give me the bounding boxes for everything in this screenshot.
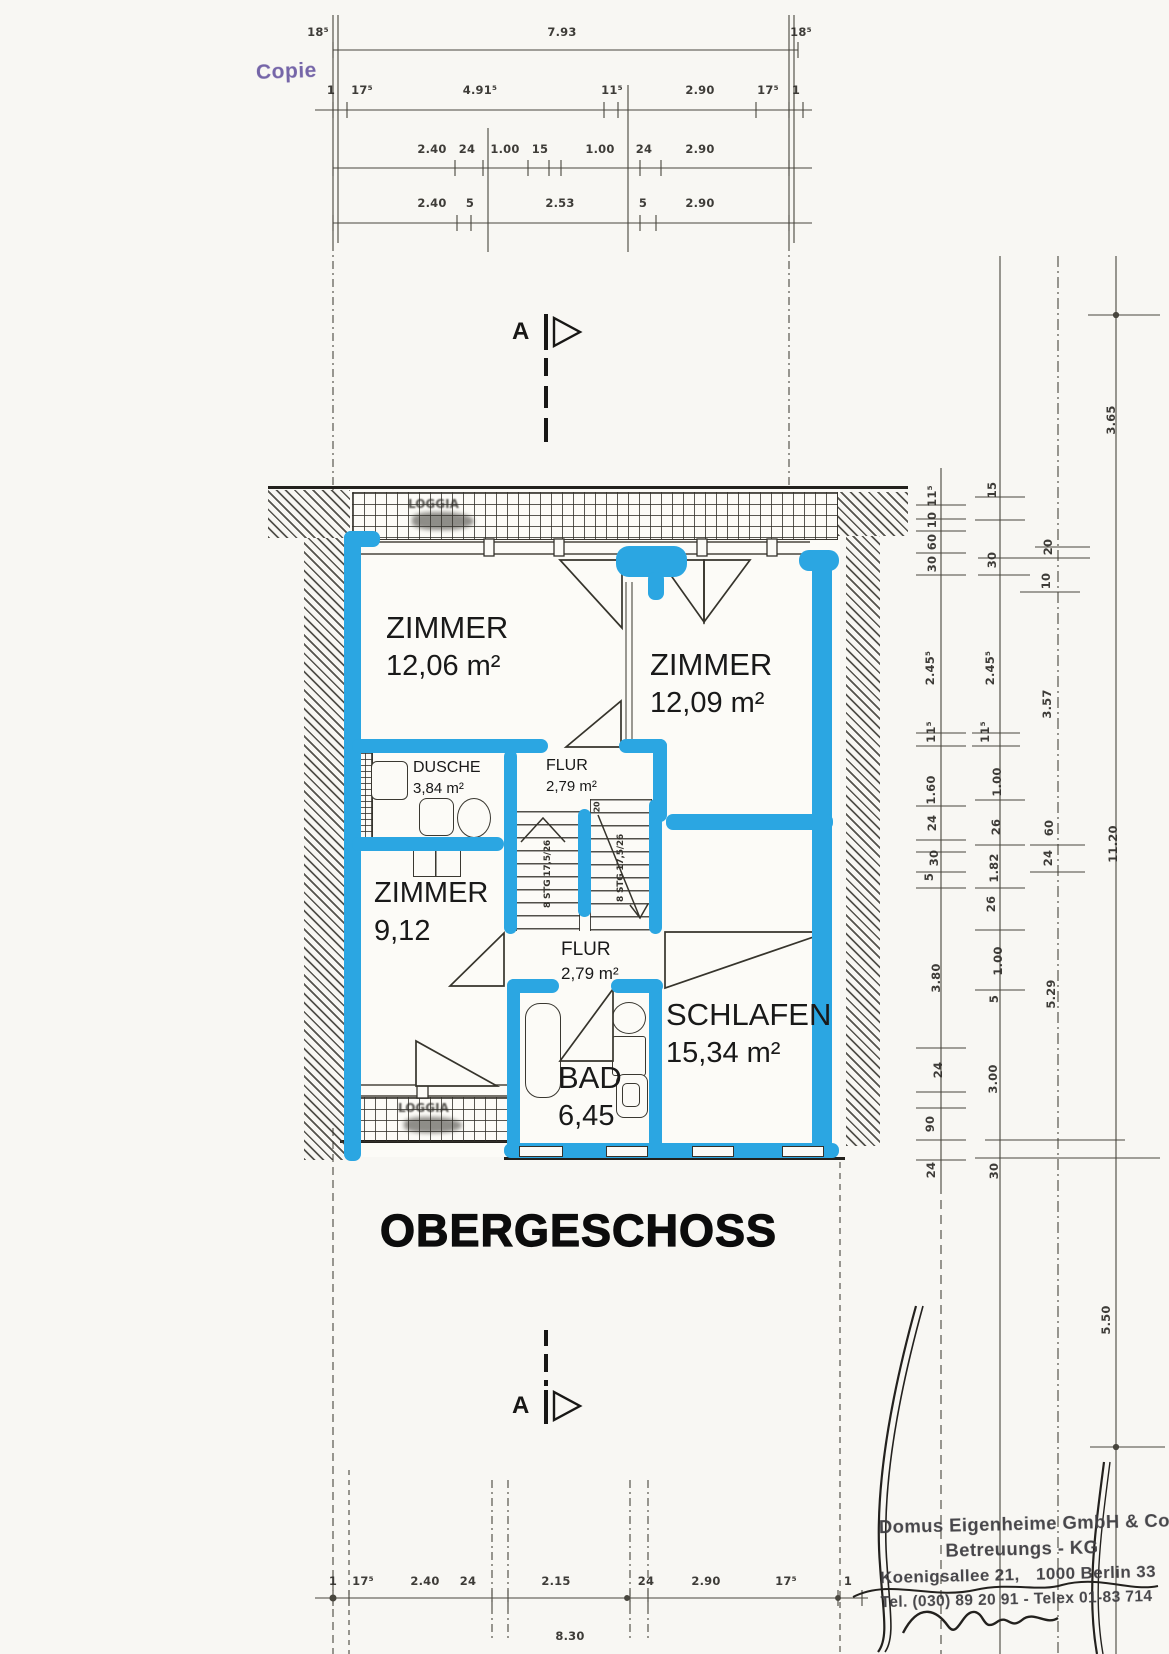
section-letter-bottom: A (512, 1392, 529, 1420)
dimension-label: 20 (1041, 539, 1055, 555)
dimension-label: 2.90 (691, 1574, 720, 1588)
dimension-label: 1.00 (490, 142, 519, 156)
dimension-label: 18⁵ (307, 25, 329, 39)
room-name: ZIMMER (386, 608, 508, 648)
room-area: 3,84 m² (413, 779, 481, 799)
room-area: 12,06 m² (386, 648, 508, 686)
dimension-label: 5 (922, 873, 936, 881)
room-label-flur1: FLUR 2,79 m² (546, 756, 597, 796)
dimension-label: 3.57 (1040, 689, 1054, 718)
dimension-label: 17⁵ (351, 83, 373, 97)
dimension-label: 24 (931, 1062, 945, 1078)
dimension-label: 26 (984, 896, 998, 912)
section-letter-top: A (512, 318, 529, 346)
dimension-label: 2.40 (417, 142, 446, 156)
dimension-label: 17⁵ (352, 1574, 374, 1588)
wall-topleft-stub (344, 531, 380, 547)
dimension-label: 2.90 (685, 196, 714, 210)
loggia-bottom-label: LOGGIA (398, 1101, 449, 1115)
dimension-label: 1 (329, 1574, 337, 1588)
room-label-zimmer3: ZIMMER 9,12 (374, 875, 488, 950)
dim-chain-ticks (916, 315, 1165, 1447)
wall-dusche-east-stairs-west (504, 750, 517, 934)
stair-flight2-label: 8 STG 17,5/26 (616, 834, 626, 902)
room-name: BAD (558, 1058, 622, 1098)
room-name: FLUR (546, 756, 597, 777)
wall-stairs-east (649, 799, 662, 934)
south-window (782, 1146, 824, 1157)
dimension-label: 11⁵ (925, 485, 939, 507)
dimension-label: 30 (987, 1163, 1001, 1179)
dimension-label: 3.65 (1104, 405, 1118, 434)
dimension-label: 90 (923, 1116, 937, 1132)
door-swing (665, 932, 828, 988)
dimension-label: 2.53 (545, 196, 574, 210)
room-label-dusche: DUSCHE 3,84 m² (413, 758, 481, 798)
wall-bad-west (507, 979, 520, 1158)
loggia-top-smudge (412, 512, 474, 530)
dimension-label: 8.30 (555, 1629, 584, 1643)
wall-dusche-south (352, 837, 504, 851)
room-area: 9,12 (374, 913, 488, 951)
room-area: 6,45 (558, 1098, 622, 1136)
dimension-label: 11⁵ (601, 83, 623, 97)
dimension-label: 1 (844, 1574, 852, 1588)
room-label-zimmer1: ZIMMER 12,06 m² (386, 608, 508, 686)
stamp-city: 1000 Berlin 33 (1036, 1562, 1156, 1585)
dimension-label: 2.40 (417, 196, 446, 210)
room-label-bad: BAD 6,45 (558, 1058, 622, 1136)
dimension-label: 15 (985, 482, 999, 498)
room-area: 2,79 m² (561, 963, 619, 985)
dimension-label: 1 (327, 83, 335, 97)
dimension-label: 11.20 (1106, 825, 1120, 862)
dimension-label: 1.82 (987, 853, 1001, 882)
room-label-schlafen: SCHLAFEN 15,34 m² (666, 995, 831, 1073)
room-name: ZIMMER (374, 875, 488, 913)
dimension-label: 3.80 (929, 963, 943, 992)
loggia-bottom-smudge (404, 1117, 462, 1133)
dimension-label: 7.93 (547, 25, 576, 39)
copie-watermark: Copie (256, 59, 318, 85)
dimension-label: 4.91⁵ (463, 83, 497, 97)
dimension-label: 2.45⁵ (983, 651, 997, 685)
room-area: 2,79 m² (546, 777, 597, 797)
dimension-label: 11⁵ (978, 721, 992, 743)
dimension-label: 10 (925, 512, 939, 528)
stamp-address: Koenigsallee 21, (880, 1565, 1020, 1588)
dimension-label: 24 (636, 142, 652, 156)
wall-zimmer1-south (352, 739, 548, 753)
section-marker-bottom (546, 1330, 580, 1424)
loggia-top-label: LOGGIA (408, 497, 459, 511)
room-label-flur2: FLUR 2,79 m² (561, 938, 619, 985)
dimension-label: 17⁵ (757, 83, 779, 97)
dimension-label: 30 (985, 552, 999, 568)
dimension-label: 24 (460, 1574, 476, 1588)
dimension-label: 1 (792, 83, 800, 97)
dimension-label: 2.90 (685, 142, 714, 156)
dimension-label: 2.15 (541, 1574, 570, 1588)
dimension-label: 2.90 (685, 83, 714, 97)
dimension-label: 1.00 (990, 767, 1004, 796)
dimension-label: 24 (925, 815, 939, 831)
room-name: ZIMMER (650, 645, 772, 685)
stair-tread-label: 20 (593, 802, 602, 813)
wall-schlafen-north (666, 814, 833, 830)
dimension-label: 5.29 (1044, 979, 1058, 1008)
dimension-label: 2.40 (410, 1574, 439, 1588)
company-stamp: Domus Eigenheime GmbH & Co. Betreuungs -… (870, 1502, 1169, 1649)
room-name: SCHLAFEN (666, 995, 831, 1035)
dimension-label: 15 (532, 142, 548, 156)
dimension-label: 1.60 (924, 775, 938, 804)
dimension-label: 5 (466, 196, 474, 210)
stamp-company-2: Betreuungs - KG (945, 1536, 1098, 1561)
dimension-label: 2.45⁵ (923, 651, 937, 685)
door-swing (416, 1041, 497, 1086)
dimension-label: 5.50 (1099, 1305, 1113, 1334)
south-window (606, 1146, 648, 1157)
stair-flight1-label: 8 STG 17,5/26 (543, 840, 553, 908)
dimension-label: 5 (639, 196, 647, 210)
dimension-label: 24 (638, 1574, 654, 1588)
dimension-label: 24 (924, 1162, 938, 1178)
dimension-label: 10 (1039, 573, 1053, 589)
room-name: FLUR (561, 938, 619, 963)
wall-stairs-mid (578, 809, 591, 917)
door-swing (704, 560, 750, 622)
dimension-label: 17⁵ (775, 1574, 797, 1588)
floor-plan-sheet: Copie ZIMMER 12,06 m² ZIMMER 12,09 m² DU… (0, 0, 1169, 1654)
dimension-label: 1.00 (991, 946, 1005, 975)
dimension-label: 11⁵ (924, 721, 938, 743)
door-swing (560, 560, 622, 628)
south-window (519, 1146, 563, 1157)
dimension-label: 1.00 (585, 142, 614, 156)
door-swing (566, 701, 621, 747)
plan-title: OBERGESCHOSS (380, 1205, 777, 1257)
wall-schlafen-west (649, 979, 662, 1158)
room-area: 12,09 m² (650, 685, 772, 723)
dimension-label: 3.00 (986, 1064, 1000, 1093)
dimension-label: 26 (989, 819, 1003, 835)
dimension-label: 60 (1042, 820, 1056, 836)
wall-pier-stub (648, 572, 664, 600)
dimension-label: 18⁵ (790, 25, 812, 39)
dimension-label: 5 (987, 995, 1001, 1003)
stamp-company: Domus Eigenheime GmbH & Co. (879, 1510, 1169, 1539)
dimension-label: 24 (1041, 850, 1055, 866)
dimension-label: 60 (925, 534, 939, 550)
dimension-label: 30 (927, 850, 941, 866)
stamp-phone: Tel. (030) 89 20 91 - Telex 01-83 714 (880, 1588, 1152, 1612)
room-name: DUSCHE (413, 758, 481, 779)
dimension-label: 24 (459, 142, 475, 156)
dimension-label: 30 (925, 556, 939, 572)
door-swing (560, 989, 613, 1061)
south-window (692, 1146, 734, 1157)
room-label-zimmer2: ZIMMER 12,09 m² (650, 645, 772, 723)
room-area: 15,34 m² (666, 1035, 831, 1073)
section-marker-top (546, 314, 580, 442)
